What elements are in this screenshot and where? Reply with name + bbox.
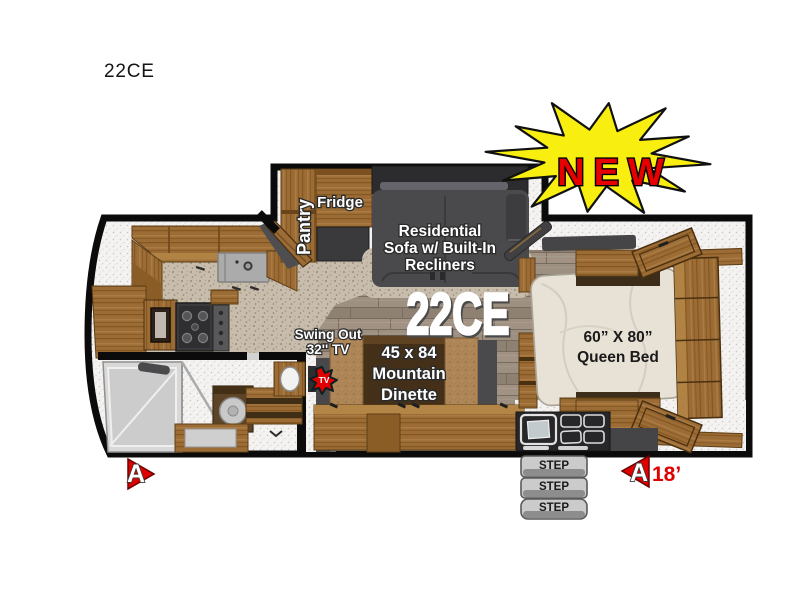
svg-text:Queen Bed: Queen Bed bbox=[577, 349, 659, 366]
svg-text:Pantry: Pantry bbox=[294, 199, 314, 255]
svg-text:18’: 18’ bbox=[652, 463, 681, 486]
svg-text:Residential: Residential bbox=[399, 223, 482, 240]
svg-text:A: A bbox=[630, 459, 648, 487]
svg-text:TV: TV bbox=[319, 375, 330, 385]
svg-text:32'' TV: 32'' TV bbox=[307, 342, 349, 357]
svg-text:STEP: STEP bbox=[539, 481, 569, 493]
svg-text:Mountain: Mountain bbox=[372, 365, 445, 383]
svg-text:22CE: 22CE bbox=[407, 281, 510, 347]
svg-text:STEP: STEP bbox=[539, 502, 569, 514]
svg-text:Recliners: Recliners bbox=[405, 257, 475, 274]
svg-text:60” X 80”: 60” X 80” bbox=[584, 329, 653, 346]
svg-text:22CE: 22CE bbox=[104, 61, 155, 82]
svg-text:A: A bbox=[127, 460, 145, 488]
svg-text:Dinette: Dinette bbox=[381, 386, 437, 404]
svg-text:Sofa w/ Built-In: Sofa w/ Built-In bbox=[384, 240, 496, 257]
svg-text:STEP: STEP bbox=[539, 460, 569, 472]
svg-text:Fridge: Fridge bbox=[317, 194, 363, 211]
svg-text:NEW: NEW bbox=[557, 152, 673, 194]
svg-text:Swing Out: Swing Out bbox=[295, 327, 362, 342]
